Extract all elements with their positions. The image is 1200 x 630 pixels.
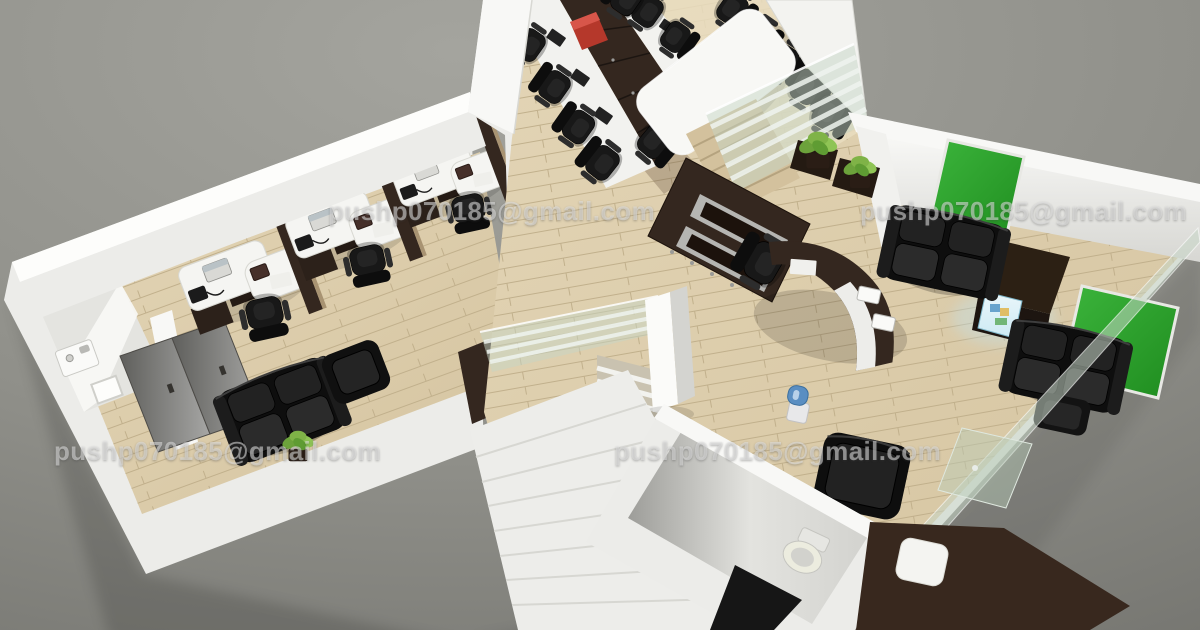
glass-door-handle	[972, 465, 978, 471]
office-3d-scene	[0, 0, 1200, 630]
papers	[790, 259, 817, 276]
water-cooler	[786, 384, 810, 424]
render-canvas: pushp070185@gmail.com pushp070185@gmail.…	[0, 0, 1200, 630]
